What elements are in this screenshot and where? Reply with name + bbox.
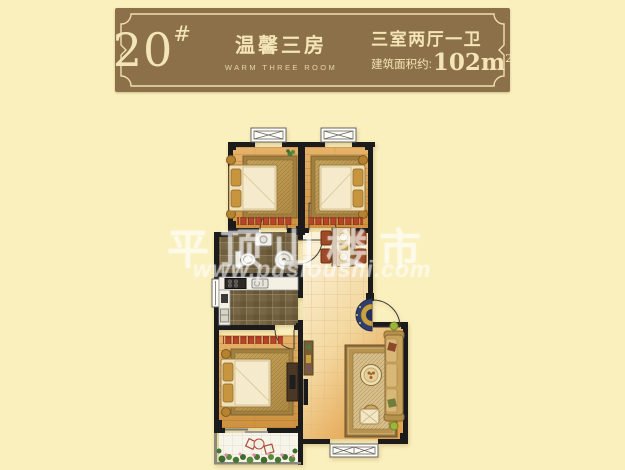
unit-spec-block: 三室两厅一卫 建筑面积约: 102m 2 — [371, 25, 512, 75]
dining-chair — [356, 249, 366, 263]
kitchen-sink — [252, 279, 268, 288]
floorplan-card-page: { "page": { "background_color": "#FAF0BE… — [0, 0, 625, 470]
unit-name-block: 温馨三房 WARM THREE ROOM — [225, 29, 337, 72]
radiator — [237, 217, 293, 225]
nightstand-lamp — [222, 408, 231, 417]
side-cabinet — [304, 341, 313, 375]
unit-name-chinese: 温馨三房 — [235, 29, 327, 58]
dining-chair — [321, 249, 331, 263]
tv-panel — [304, 379, 309, 405]
nightstand-lamp — [222, 350, 231, 359]
dining-chair — [321, 231, 331, 245]
room-layout-spec: 三室两厅一卫 — [371, 25, 482, 50]
ottoman — [360, 409, 379, 424]
nightstand-lamp — [359, 156, 368, 165]
sofa-side-plant — [390, 422, 398, 430]
area-row: 建筑面积约: 102m 2 — [371, 51, 512, 75]
kitchen-appliance — [221, 294, 228, 303]
radiator — [223, 336, 283, 344]
floorplan-drawing — [195, 113, 440, 468]
unit-number-hash: # — [173, 24, 191, 45]
unit-number: 20 # — [113, 20, 191, 80]
area-superscript: 2 — [505, 53, 512, 64]
unit-number-value: 20 — [113, 20, 174, 80]
shower — [275, 251, 294, 270]
radiator — [309, 217, 363, 225]
sofa-side-plant — [390, 322, 398, 330]
top-window-left — [251, 128, 286, 142]
balcony-sliding-door — [225, 429, 268, 434]
kitchen-side-window — [212, 279, 219, 307]
bottom-window — [330, 444, 378, 457]
sofa — [384, 331, 404, 421]
coffee-table — [361, 365, 382, 386]
unit-name-english: WARM THREE ROOM — [225, 63, 337, 72]
plaque-content: 20 # 温馨三房 WARM THREE ROOM 三室两厅一卫 建筑面积约: … — [115, 8, 510, 92]
dining-chair — [356, 231, 366, 245]
area-label: 建筑面积约: — [371, 55, 432, 75]
kitchen-stove — [225, 279, 246, 289]
nightstand-lamp — [227, 156, 236, 165]
bedroom2-furniture — [309, 156, 368, 226]
top-window-right — [321, 128, 356, 142]
header-plaque: 20 # 温馨三房 WARM THREE ROOM 三室两厅一卫 建筑面积约: … — [115, 8, 510, 92]
area-value: 102m — [433, 51, 505, 75]
